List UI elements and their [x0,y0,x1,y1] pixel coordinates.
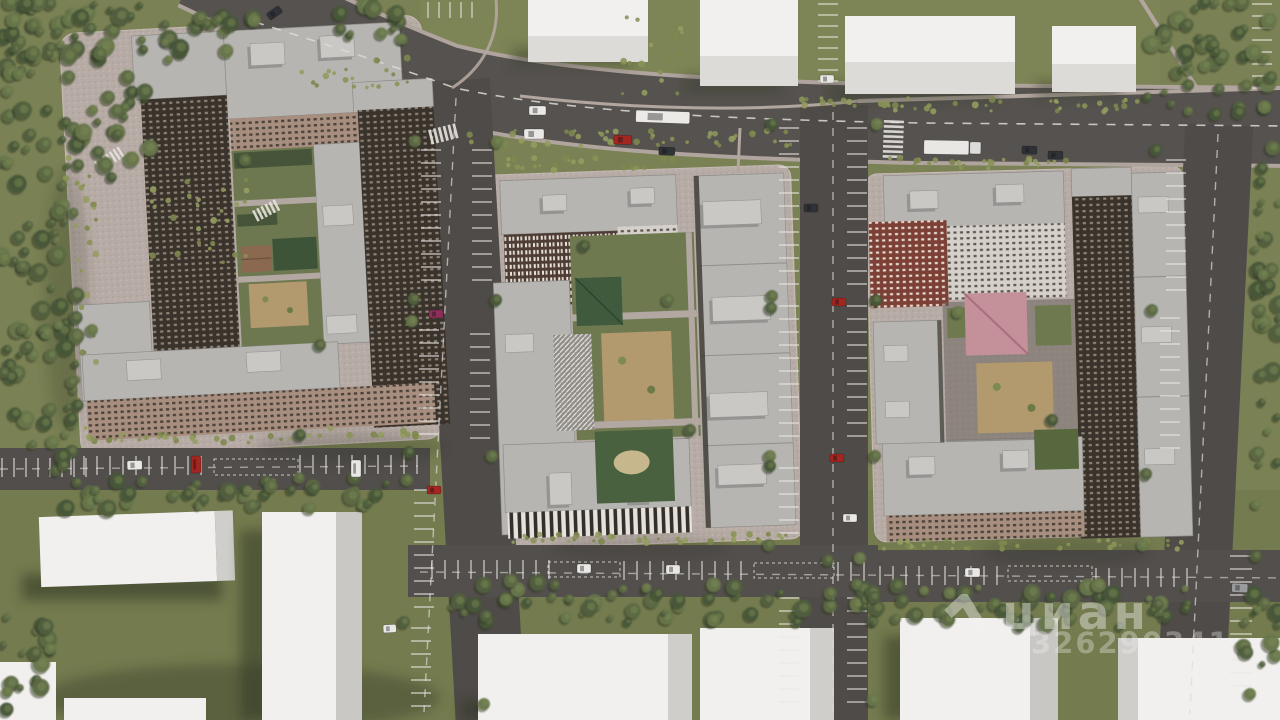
right-east-tower-roof [1071,167,1132,197]
scene-svg [0,0,1280,720]
mid-courtyard-playground [601,331,674,421]
left-courtyard-playground [249,281,309,328]
street-center [800,105,868,720]
right-east-slab-roof [1131,172,1193,537]
right-courtyard-green-patch [1034,429,1079,470]
left-courtyard [232,147,324,347]
middle-residential-quarter [490,171,796,539]
right-south-facade [886,511,1085,542]
mid-courtyard-parking-ramp [553,334,594,431]
left-west-tower-facade [141,95,240,351]
aerial-masterplan-render: циан ID 326290341 [0,0,1280,720]
left-courtyard-green-field [272,237,318,271]
right-red-brick-facade [868,220,948,308]
right-white-facade [947,223,1067,300]
right-residential-quarter [867,166,1193,544]
right-west-wing-roof [873,320,944,444]
right-courtyard-playground [976,361,1054,433]
